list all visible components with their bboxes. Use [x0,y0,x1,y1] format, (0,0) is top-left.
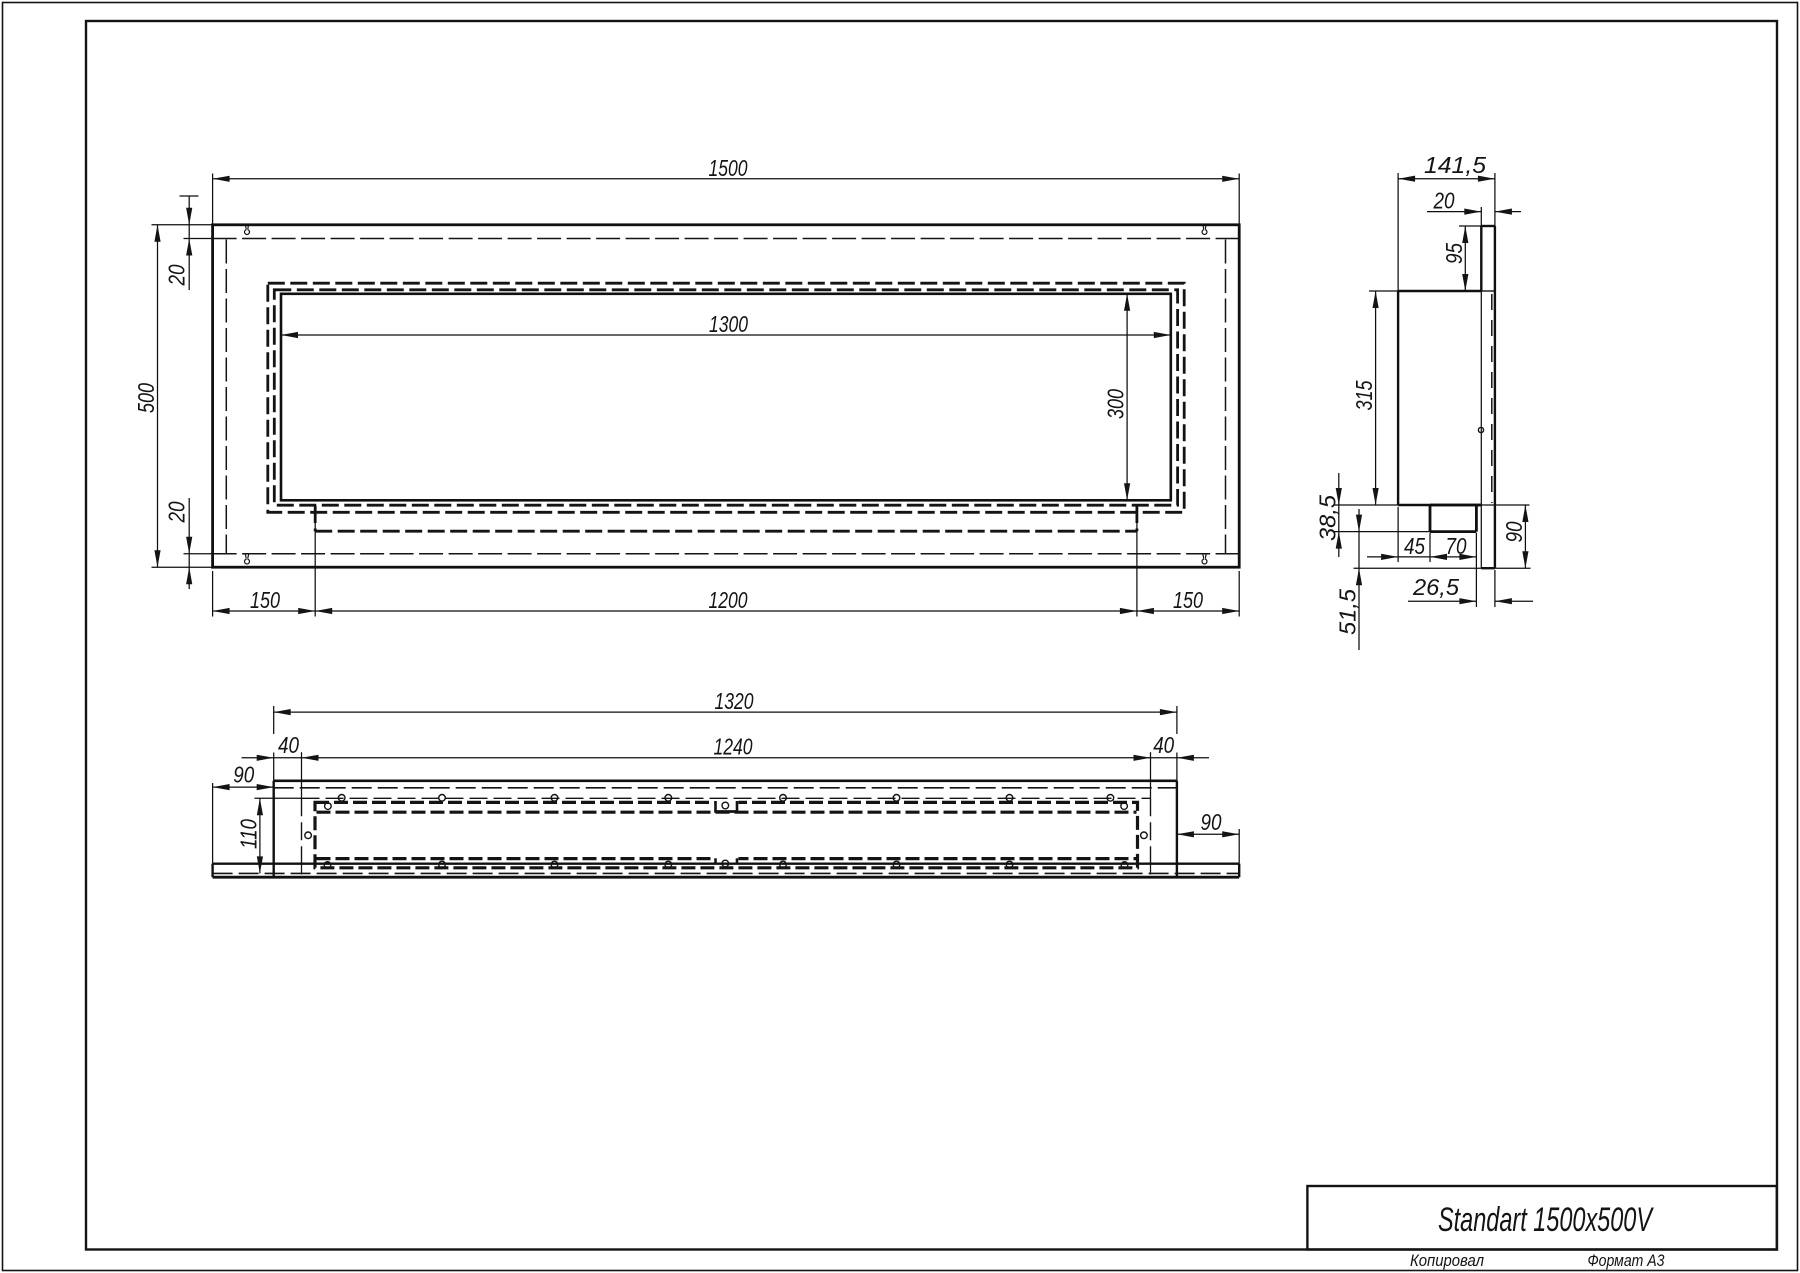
svg-text:1320: 1320 [715,688,754,714]
svg-text:110: 110 [235,819,261,849]
svg-text:1240: 1240 [714,734,753,760]
svg-text:51,5: 51,5 [1335,589,1361,635]
svg-text:90: 90 [233,762,254,788]
svg-text:45: 45 [1404,533,1425,559]
svg-text:40: 40 [278,732,299,758]
svg-text:Копировал: Копировал [1410,1251,1484,1270]
svg-text:26,5: 26,5 [1412,574,1459,600]
svg-text:150: 150 [1173,587,1203,613]
svg-text:20: 20 [1433,188,1455,214]
svg-text:90: 90 [1501,521,1527,542]
svg-text:315: 315 [1351,380,1377,410]
svg-text:Формат А3: Формат А3 [1588,1251,1665,1270]
svg-text:141,5: 141,5 [1424,152,1486,178]
svg-text:300: 300 [1103,389,1129,419]
svg-text:1200: 1200 [709,587,748,613]
svg-text:95: 95 [1441,243,1467,264]
svg-text:500: 500 [133,383,159,413]
svg-text:150: 150 [250,587,280,613]
svg-text:Standart 1500x500V: Standart 1500x500V [1438,1201,1654,1239]
svg-text:38,5: 38,5 [1314,495,1340,541]
svg-text:20: 20 [164,501,190,523]
svg-text:90: 90 [1201,809,1222,835]
svg-text:1500: 1500 [709,155,748,181]
svg-text:1300: 1300 [709,311,748,337]
svg-text:70: 70 [1446,533,1467,559]
svg-text:20: 20 [164,264,190,286]
svg-text:40: 40 [1153,732,1174,758]
